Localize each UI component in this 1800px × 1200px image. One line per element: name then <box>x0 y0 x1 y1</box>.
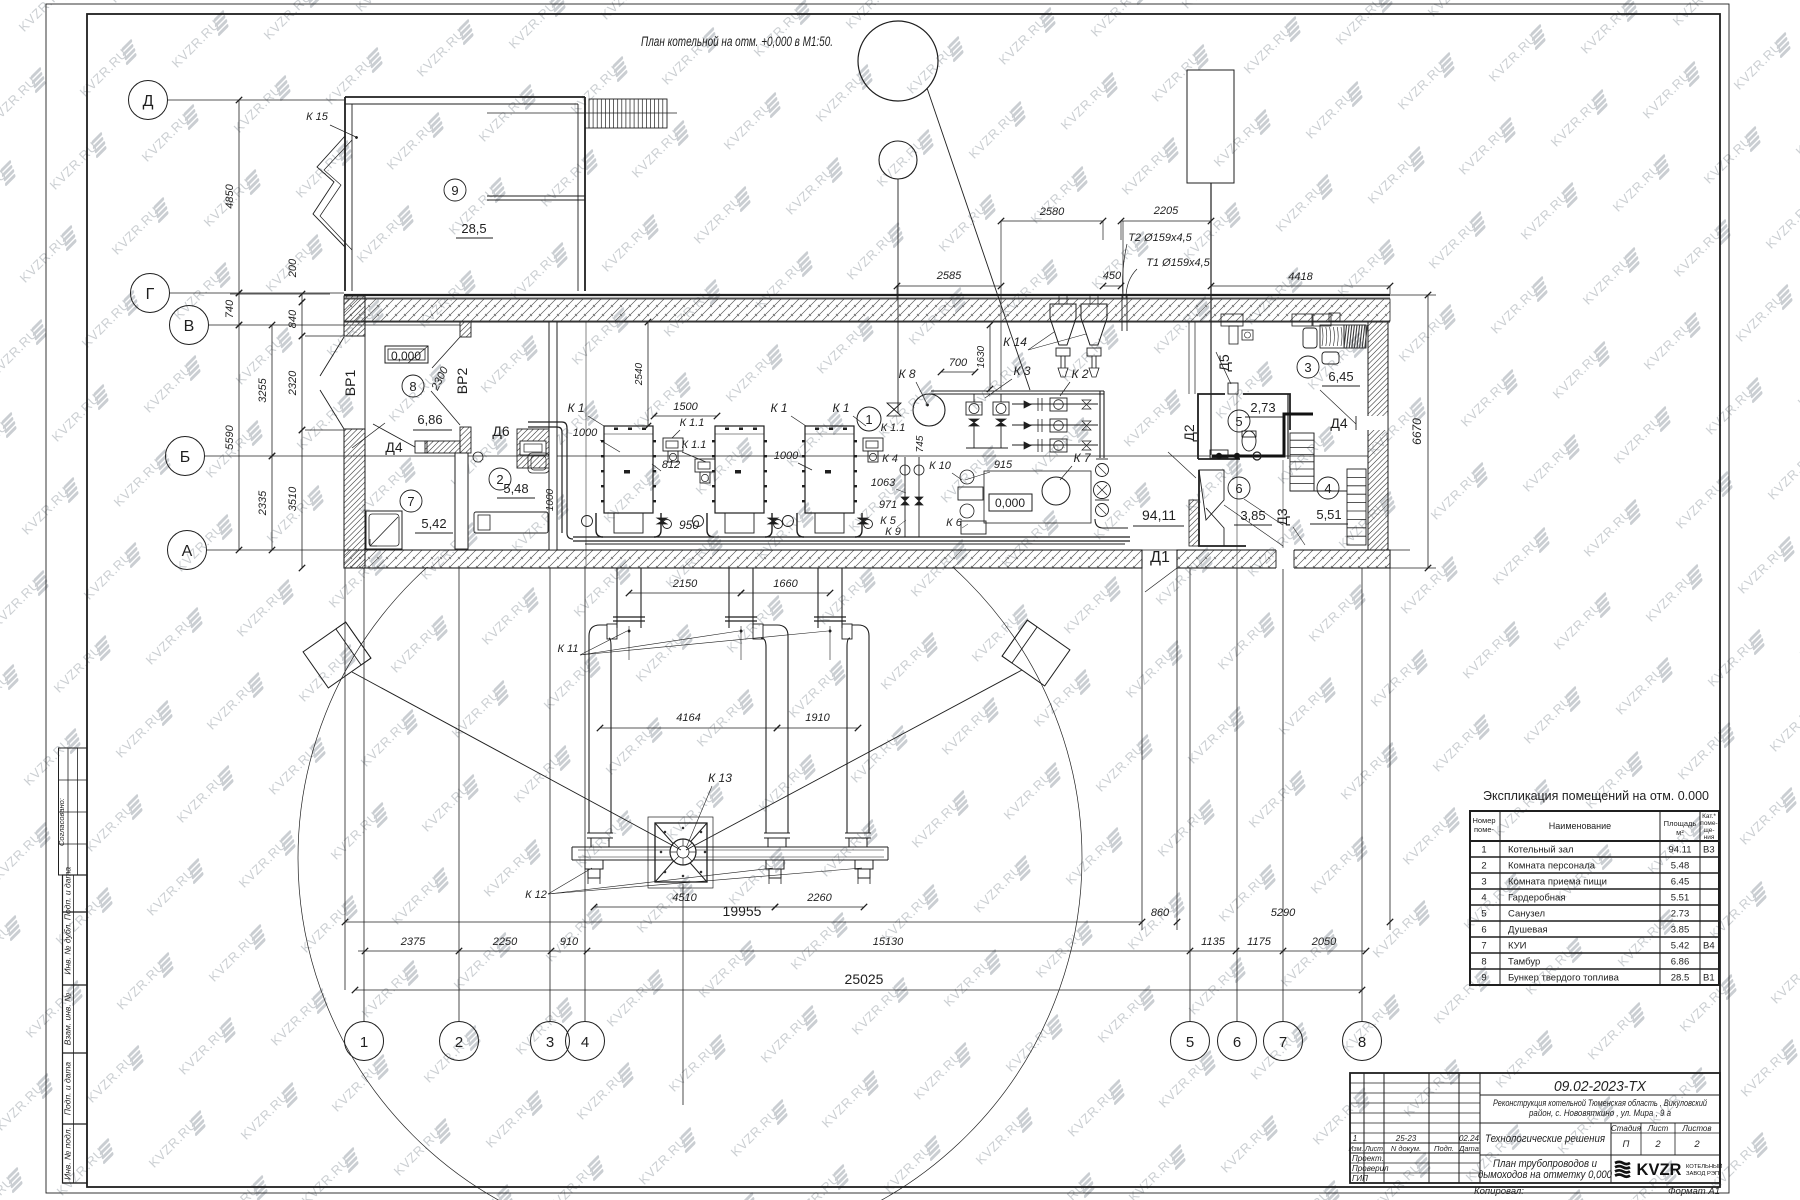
svg-text:Инв. № дубл.: Инв. № дубл. <box>63 922 73 974</box>
svg-text:2580: 2580 <box>1039 206 1065 218</box>
svg-text:4418: 4418 <box>1288 271 1313 283</box>
svg-text:25025: 25025 <box>845 971 884 987</box>
svg-text:2: 2 <box>1693 1139 1700 1150</box>
svg-text:6: 6 <box>1235 481 1242 496</box>
svg-text:К 1.1: К 1.1 <box>682 439 707 451</box>
svg-text:Б: Б <box>180 449 191 466</box>
svg-text:6.45: 6.45 <box>1671 877 1690 888</box>
svg-text:2: 2 <box>1481 861 1486 872</box>
svg-text:2540: 2540 <box>634 362 645 386</box>
svg-text:Наименование: Наименование <box>1549 821 1611 831</box>
svg-text:2205: 2205 <box>1153 205 1179 217</box>
svg-text:Листов: Листов <box>1681 1124 1711 1133</box>
svg-text:6,86: 6,86 <box>417 412 442 427</box>
svg-text:ния: ния <box>1704 834 1715 841</box>
svg-text:02.24: 02.24 <box>1459 1134 1480 1143</box>
svg-text:ВР1: ВР1 <box>342 370 358 397</box>
svg-text:К 2: К 2 <box>1071 367 1088 381</box>
svg-text:КОТЕЛЬНЫЙ: КОТЕЛЬНЫЙ <box>1686 1162 1722 1170</box>
svg-text:6670: 6670 <box>1410 418 1424 445</box>
svg-text:2: 2 <box>1654 1139 1661 1150</box>
svg-text:4: 4 <box>1324 481 1331 496</box>
svg-text:Площадь: Площадь <box>1664 819 1697 828</box>
svg-text:8: 8 <box>409 379 416 394</box>
svg-text:В1: В1 <box>1703 973 1715 984</box>
svg-text:5590: 5590 <box>224 424 236 449</box>
svg-text:м²: м² <box>1676 828 1684 837</box>
svg-text:План котельной на отм. +0,000: План котельной на отм. +0,000 в М1:50. <box>641 34 833 49</box>
svg-text:Д: Д <box>143 93 154 110</box>
svg-text:К 3: К 3 <box>1013 364 1030 378</box>
svg-text:ВР2: ВР2 <box>454 368 470 395</box>
svg-text:7: 7 <box>407 494 414 509</box>
svg-text:Тамбур: Тамбур <box>1508 957 1540 968</box>
svg-text:К 15: К 15 <box>306 111 329 123</box>
svg-text:5,48: 5,48 <box>503 481 528 496</box>
svg-text:К 13: К 13 <box>708 771 732 785</box>
svg-text:Душевая: Душевая <box>1508 925 1548 936</box>
svg-text:4850: 4850 <box>224 183 236 208</box>
svg-text:5: 5 <box>1186 1034 1194 1051</box>
svg-text:94,11: 94,11 <box>1142 507 1176 523</box>
svg-text:К 4: К 4 <box>882 453 898 465</box>
svg-text:1063: 1063 <box>871 477 896 489</box>
svg-text:Инв. № подл.: Инв. № подл. <box>63 1127 73 1180</box>
svg-text:700: 700 <box>949 357 968 369</box>
svg-text:К 1: К 1 <box>770 401 787 415</box>
svg-text:К 12: К 12 <box>525 889 547 901</box>
svg-text:Д6: Д6 <box>492 423 509 439</box>
svg-text:6: 6 <box>1233 1034 1241 1051</box>
svg-text:К 1.1: К 1.1 <box>680 417 705 429</box>
svg-text:Д2: Д2 <box>1181 424 1197 441</box>
svg-text:19955: 19955 <box>723 903 762 919</box>
svg-text:4: 4 <box>581 1034 589 1051</box>
svg-text:KVZR: KVZR <box>1637 1161 1682 1179</box>
svg-text:Согласовано:: Согласовано: <box>57 798 66 846</box>
svg-text:дымоходов на отметку 0,000: дымоходов на отметку 0,000 <box>1478 1169 1613 1181</box>
svg-text:28.5: 28.5 <box>1671 973 1690 984</box>
svg-text:3,85: 3,85 <box>1240 508 1265 523</box>
svg-text:Дата: Дата <box>1458 1144 1479 1153</box>
svg-text:9: 9 <box>1481 973 1486 984</box>
svg-text:Номер: Номер <box>1472 816 1495 825</box>
svg-text:745: 745 <box>915 435 926 452</box>
svg-text:3: 3 <box>1481 877 1486 888</box>
svg-text:840: 840 <box>287 309 299 328</box>
svg-text:А: А <box>182 543 193 560</box>
svg-text:915: 915 <box>994 459 1013 471</box>
svg-text:Взам. инв. №: Взам. инв. № <box>63 993 73 1046</box>
svg-text:2050: 2050 <box>1311 936 1337 948</box>
svg-text:0,000: 0,000 <box>391 349 421 363</box>
svg-text:1910: 1910 <box>805 712 830 724</box>
svg-text:1660: 1660 <box>773 578 798 590</box>
svg-text:1175: 1175 <box>1247 936 1272 948</box>
svg-text:Санузел: Санузел <box>1508 909 1545 920</box>
svg-text:1630: 1630 <box>976 345 987 368</box>
svg-text:Копировал:: Копировал: <box>1474 1186 1524 1197</box>
svg-text:Лист: Лист <box>1364 1146 1383 1153</box>
svg-text:Подп.: Подп. <box>1434 1144 1454 1153</box>
svg-text:2585: 2585 <box>936 270 962 282</box>
svg-text:1: 1 <box>865 412 872 427</box>
svg-text:КУИ: КУИ <box>1508 941 1527 952</box>
svg-text:1: 1 <box>1353 1134 1357 1143</box>
svg-text:1000: 1000 <box>573 427 598 439</box>
svg-text:8: 8 <box>1358 1034 1366 1051</box>
svg-text:09.02-2023-ТХ: 09.02-2023-ТХ <box>1554 1078 1647 1095</box>
svg-text:К 8: К 8 <box>898 367 915 381</box>
svg-text:поме-: поме- <box>1474 825 1495 834</box>
svg-text:2,73: 2,73 <box>1250 400 1275 415</box>
svg-text:1: 1 <box>1481 845 1486 856</box>
svg-text:5.42: 5.42 <box>1671 941 1690 952</box>
svg-text:Т2 Ø159х4,5: Т2 Ø159х4,5 <box>1128 232 1192 244</box>
svg-text:Подп. и дата: Подп. и дата <box>63 867 73 920</box>
svg-text:1500: 1500 <box>673 401 698 413</box>
svg-text:6: 6 <box>1481 925 1486 936</box>
svg-text:Котельный зал: Котельный зал <box>1508 845 1574 856</box>
svg-text:5,42: 5,42 <box>421 516 446 531</box>
svg-text:5.48: 5.48 <box>1671 861 1690 872</box>
svg-text:15130: 15130 <box>873 936 904 948</box>
svg-text:Д1: Д1 <box>1150 549 1170 566</box>
svg-text:Гардеробная: Гардеробная <box>1508 893 1565 904</box>
svg-text:2150: 2150 <box>672 578 698 590</box>
svg-text:К 11: К 11 <box>558 643 579 655</box>
svg-text:3: 3 <box>546 1034 554 1051</box>
svg-text:Комната приема пищи: Комната приема пищи <box>1508 877 1607 888</box>
svg-text:9: 9 <box>451 183 458 198</box>
svg-text:Д4: Д4 <box>1330 415 1347 431</box>
svg-text:2250: 2250 <box>492 936 518 948</box>
svg-text:2.73: 2.73 <box>1671 909 1690 920</box>
svg-text:П: П <box>1623 1139 1630 1150</box>
svg-text:971: 971 <box>879 499 897 511</box>
svg-text:4164: 4164 <box>676 712 700 724</box>
svg-text:200: 200 <box>287 258 299 278</box>
svg-text:860: 860 <box>1151 907 1170 919</box>
svg-text:Кат.*: Кат.* <box>1702 813 1716 820</box>
svg-text:4510: 4510 <box>672 892 697 904</box>
svg-text:3.85: 3.85 <box>1671 925 1690 936</box>
svg-text:3510: 3510 <box>287 486 299 511</box>
svg-text:район, с. Нововяткино , ул. Ми: район, с. Нововяткино , ул. Мира , 9 а <box>1528 1108 1671 1119</box>
svg-text:К 14: К 14 <box>1003 335 1027 349</box>
svg-text:6.86: 6.86 <box>1671 957 1690 968</box>
svg-text:910: 910 <box>560 936 579 948</box>
svg-text:3: 3 <box>1304 360 1311 375</box>
svg-text:Комната персонала: Комната персонала <box>1508 861 1596 872</box>
svg-text:ЗАВОД РЭП: ЗАВОД РЭП <box>1686 1171 1719 1177</box>
svg-text:2335: 2335 <box>257 490 269 516</box>
svg-text:1135: 1135 <box>1201 936 1226 948</box>
svg-text:2375: 2375 <box>400 936 426 948</box>
svg-text:8: 8 <box>1481 957 1486 968</box>
svg-text:1: 1 <box>360 1034 368 1051</box>
svg-text:Бункер твердого топлива: Бункер твердого топлива <box>1508 973 1620 984</box>
svg-text:К 6: К 6 <box>946 517 963 529</box>
svg-text:Лист: Лист <box>1647 1124 1669 1133</box>
svg-text:Стадия: Стадия <box>1611 1124 1642 1133</box>
svg-text:Подп. и дата: Подп. и дата <box>63 1062 73 1115</box>
svg-text:ГИП: ГИП <box>1352 1174 1368 1183</box>
svg-text:3255: 3255 <box>257 377 269 402</box>
svg-text:Д4: Д4 <box>385 439 402 455</box>
svg-text:Изм.: Изм. <box>1349 1146 1364 1153</box>
svg-text:2320: 2320 <box>287 370 299 396</box>
svg-text:К 1: К 1 <box>567 401 584 415</box>
svg-text:К 9: К 9 <box>885 526 901 538</box>
svg-text:94.11: 94.11 <box>1668 845 1691 856</box>
svg-text:N докум.: N докум. <box>1391 1144 1421 1153</box>
svg-text:2260: 2260 <box>806 892 832 904</box>
svg-text:2: 2 <box>455 1034 463 1051</box>
svg-text:поме-: поме- <box>1700 820 1717 827</box>
svg-text:450: 450 <box>1103 270 1122 282</box>
svg-text:6,45: 6,45 <box>1328 369 1353 384</box>
svg-text:5.51: 5.51 <box>1671 893 1690 904</box>
svg-text:В3: В3 <box>1703 845 1715 856</box>
svg-text:ще-: ще- <box>1703 827 1714 834</box>
svg-text:Проект.: Проект. <box>1352 1154 1384 1163</box>
svg-text:28,5: 28,5 <box>461 221 486 236</box>
svg-text:Проверил: Проверил <box>1352 1164 1389 1173</box>
svg-text:1000: 1000 <box>545 488 556 511</box>
svg-text:Д3: Д3 <box>1274 508 1290 525</box>
svg-text:Формат А1: Формат А1 <box>1668 1186 1720 1197</box>
svg-text:740: 740 <box>224 299 236 318</box>
svg-text:5,51: 5,51 <box>1316 507 1341 522</box>
svg-text:К 1: К 1 <box>832 401 849 415</box>
svg-text:Г: Г <box>146 286 155 303</box>
svg-text:К 7: К 7 <box>1073 451 1091 465</box>
svg-text:7: 7 <box>1279 1034 1287 1051</box>
svg-text:Технологические решения: Технологические решения <box>1485 1133 1605 1145</box>
svg-text:5: 5 <box>1481 909 1486 920</box>
svg-text:25-23: 25-23 <box>1395 1134 1417 1143</box>
svg-text:4: 4 <box>1481 893 1486 904</box>
svg-text:В: В <box>184 318 195 335</box>
svg-text:0,000: 0,000 <box>995 496 1025 510</box>
svg-text:В4: В4 <box>1703 941 1715 952</box>
svg-text:950: 950 <box>679 518 699 532</box>
svg-text:5290: 5290 <box>1271 907 1296 919</box>
svg-text:К 1.1: К 1.1 <box>881 422 906 434</box>
svg-text:Экспликация помещений на о: Экспликация помещений на отм. 0.000 <box>1483 789 1709 803</box>
svg-text:7: 7 <box>1481 941 1486 952</box>
svg-text:812: 812 <box>662 459 680 471</box>
svg-text:5: 5 <box>1235 414 1242 429</box>
svg-text:1000: 1000 <box>774 450 799 462</box>
svg-text:Т1 Ø159х4,5: Т1 Ø159х4,5 <box>1146 257 1210 269</box>
svg-text:К 10: К 10 <box>929 460 952 472</box>
